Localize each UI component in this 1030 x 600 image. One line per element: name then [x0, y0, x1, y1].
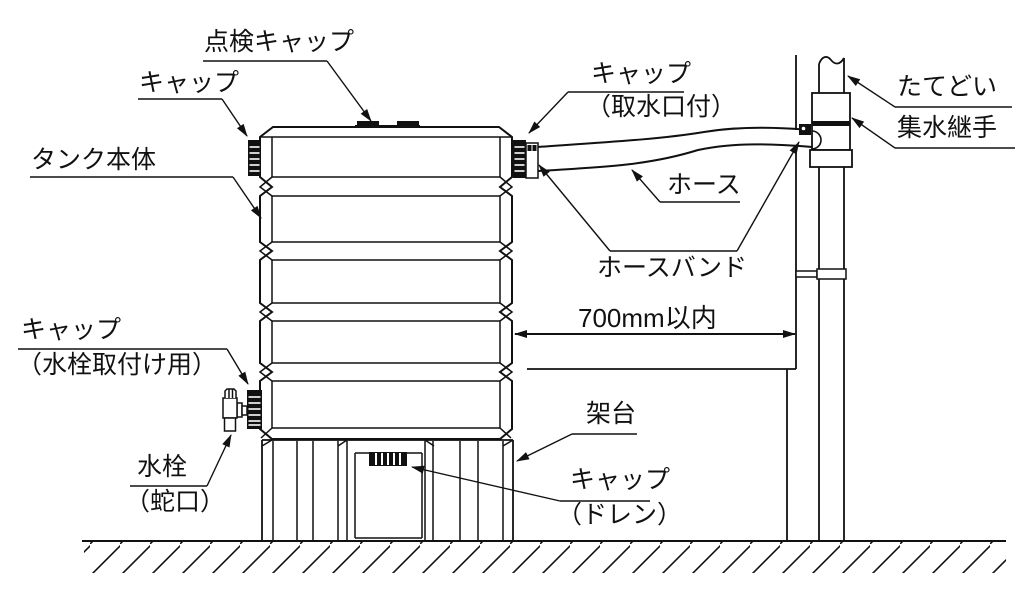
- leader-hose: [632, 170, 660, 202]
- leader-faucet: [207, 435, 231, 486]
- label-downspout: たてどい: [897, 73, 997, 103]
- inspection-cap-icon: [355, 121, 420, 128]
- leader-downspout: [848, 76, 895, 107]
- tank-outline: [260, 127, 512, 439]
- collector-fitting: [810, 93, 852, 167]
- diagram-canvas: [data-name="leader-lines"] path { marker…: [0, 0, 1030, 600]
- label-stand: 架台: [586, 400, 636, 430]
- leader-cap-left: [222, 99, 247, 136]
- cap-drain-icon: [369, 452, 407, 466]
- leader-cap-intake: [529, 92, 568, 133]
- label-cap-top-left: キャップ: [139, 69, 239, 99]
- leader-cap-drain: [412, 467, 560, 501]
- label-cap-faucet: キャップ （水栓取付け用）: [21, 316, 121, 346]
- leader-collector-fitting: [852, 118, 895, 148]
- label-collector-fitting: 集水継手: [897, 114, 997, 144]
- label-faucet: 水栓 （蛇口）: [137, 453, 187, 483]
- label-hose: ホース: [667, 171, 741, 201]
- tank-body: [260, 127, 512, 439]
- hose-band-right: [799, 124, 811, 135]
- cap-intake-icon: [513, 140, 538, 178]
- cap-top-left-icon: [248, 140, 261, 176]
- leader-hose-band-left: [539, 165, 610, 251]
- label-tank-body: タンク本体: [31, 146, 156, 176]
- faucet-icon: [223, 389, 247, 431]
- hose: [538, 128, 821, 171]
- leader-inspection-cap: [327, 61, 371, 121]
- ground: [82, 541, 1006, 573]
- leader-hose-band-right: [737, 142, 799, 251]
- ground-hatching: [84, 542, 1006, 573]
- pipe-break-line: [819, 57, 844, 64]
- pipe-coupling: [796, 269, 846, 279]
- label-cap-intake: キャップ （取水口付）: [591, 60, 691, 90]
- label-cap-drain: キャップ （ドレン）: [570, 466, 670, 496]
- label-hose-band: ホースバンド: [597, 254, 747, 284]
- leader-cap-faucet: [227, 349, 248, 384]
- leader-tank-body: [233, 177, 261, 218]
- label-inspection-cap: 点検キャップ: [204, 28, 354, 58]
- leader-stand: [517, 434, 572, 461]
- label-dimension-700mm: 700mm以内: [578, 303, 717, 334]
- cap-faucet-icon: [247, 390, 262, 429]
